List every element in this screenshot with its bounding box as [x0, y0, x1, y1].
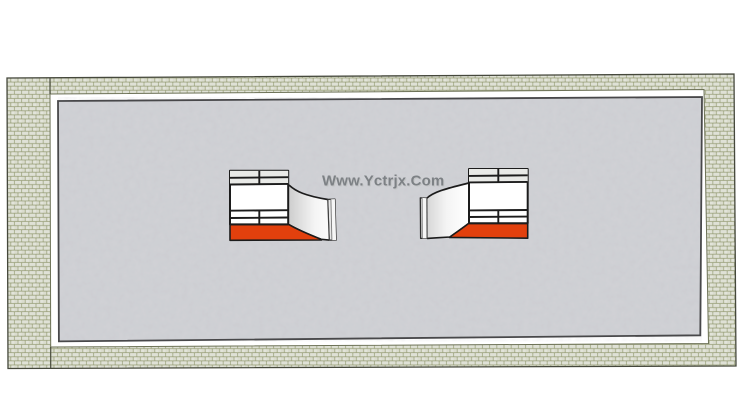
svg-text:Www.Yctrjx.Com: Www.Yctrjx.Com	[322, 173, 444, 190]
